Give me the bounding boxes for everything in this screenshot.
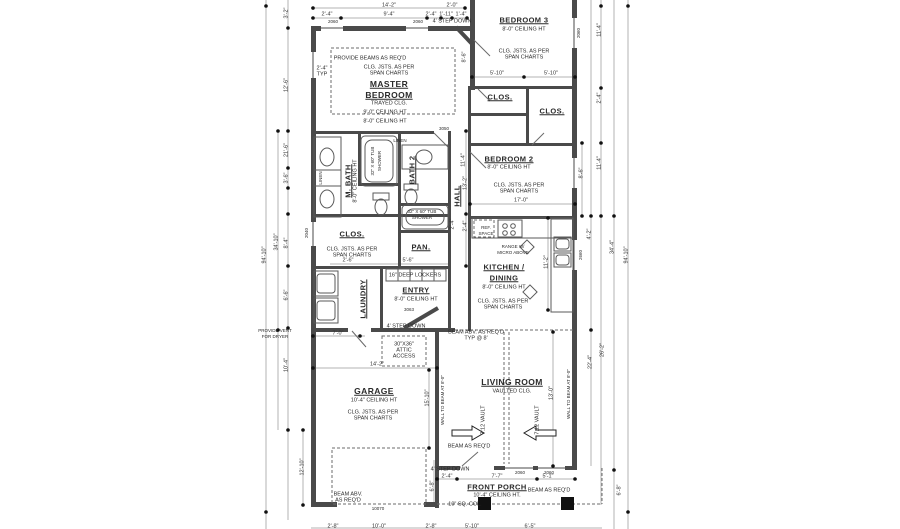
window-size-label: 2040 [305, 228, 310, 238]
dim-dot [427, 368, 431, 372]
room-label-porch: FRONT PORCH [467, 483, 526, 491]
burner-icon [503, 224, 508, 229]
note-wall-to-beam: WALL TO BEAM AT 8'-0" [567, 369, 572, 419]
mbath-ceiling-ht: 8'-0" CEILING HT [353, 159, 359, 202]
dim-label: 8'-6" [462, 52, 468, 63]
kitchen-sink-basin [556, 239, 569, 249]
note-tub-shower: 32" X 60" TUB [408, 210, 437, 215]
dim-label: 12'-10" [300, 458, 306, 475]
note-typ: TYP [317, 72, 328, 78]
note-linen: LINEN [319, 171, 324, 184]
door-leaf [352, 331, 366, 347]
dim-dot [573, 202, 577, 206]
dim-label: 3'-6" [284, 173, 290, 184]
dim-dot [573, 477, 577, 481]
toilet-icon [405, 189, 417, 205]
dim-dot [599, 86, 603, 90]
entry-ceiling-ht: 8'-0" CEILING HT [394, 297, 437, 303]
door-size-label: 10070 [372, 507, 385, 512]
burner-icon [511, 231, 516, 236]
range-icon [498, 220, 522, 237]
dim-label: 2'-4" [597, 93, 603, 104]
dim-label: 14'-2" [382, 3, 396, 9]
dryer-inner [317, 301, 335, 320]
burner-icon [511, 224, 516, 229]
dim-label: 10'-0" [372, 524, 386, 529]
note-tub-shower: 32" X 60" TUB [371, 147, 376, 176]
dim-dot [599, 141, 603, 145]
dim-label: 11'-4" [597, 23, 603, 37]
dim-dot [612, 214, 616, 218]
dim-dot [612, 468, 616, 472]
dim-dot [455, 477, 459, 481]
dim-dot [464, 264, 468, 268]
master-ceiling-ht-2: 8'-0" CEILING HT [363, 119, 406, 125]
dim-dot [301, 503, 305, 507]
door-leaf [462, 452, 478, 466]
kitchen-sink-basin [556, 255, 569, 265]
door-gap [348, 328, 371, 332]
room-label-closet-b: CLOS. [540, 107, 565, 115]
note-attic: ACCESS [393, 354, 416, 360]
wall [468, 113, 526, 116]
dim-label: 6'-8" [430, 481, 436, 492]
door-leaf [474, 40, 490, 56]
note-beam-req: BEAM AS REQ'D [528, 488, 571, 494]
room-label-closet-a: CLOS. [488, 93, 513, 101]
dim-dot [286, 186, 290, 190]
dim-label: 5'-10" [465, 524, 479, 529]
wall [526, 86, 529, 146]
dim-label: 2'-4" [442, 474, 453, 480]
window-size-label: 2060 [577, 28, 582, 38]
dim-label: 7'-7" [492, 474, 503, 480]
dim-dot [464, 129, 468, 133]
dim-dot [626, 510, 630, 514]
note-beam-req: BEAM AS REQ'D [448, 444, 491, 450]
dim-label: 6'-5" [525, 524, 536, 529]
dim-dot [286, 428, 290, 432]
dim-label: 2'-4" [463, 221, 469, 232]
washer-inner [317, 274, 335, 293]
note-vault: 7:12 VAULT [481, 405, 487, 434]
wall [435, 328, 439, 468]
dim-label: 2'-8" [328, 524, 339, 529]
room-label-kitchen-2: DINING [490, 274, 519, 282]
dim-dot [427, 446, 431, 450]
dim-label: 34'-4" [610, 240, 616, 254]
dim-dot [599, 214, 603, 218]
sink-icon [416, 150, 432, 164]
note-joists: SPAN CHARTS [354, 416, 393, 422]
dim-label: 13'-0" [549, 386, 555, 400]
bedroom2-ceiling-ht: 8'-0" CEILING HT [487, 165, 530, 171]
note-dryer-vent: FOR DRYER [262, 335, 288, 340]
dim-label: 9'-4" [384, 12, 395, 18]
living-vaulted-note: VAULTED CLG. [493, 389, 532, 395]
dim-dot [463, 6, 467, 10]
room-label-master-2: BEDROOM [365, 91, 412, 100]
dim-dot [535, 477, 539, 481]
porch-ceiling-ht: 10'-4" CEILING HT. [473, 493, 520, 499]
dim-dot [573, 75, 577, 79]
note-fridge: REF. [481, 226, 491, 231]
dim-label: 6'-6" [284, 290, 290, 301]
dim-label: 17'-0" [514, 198, 528, 204]
arrow-right-icon [452, 426, 484, 440]
window-size-label: 2060 [515, 471, 525, 476]
dim-label: 8'-4" [284, 238, 290, 249]
dim-dot [468, 202, 472, 206]
note-beam-above: TYP @ 8' [464, 336, 487, 342]
dim-dot [464, 212, 468, 216]
dim-label: 1'-11" [439, 12, 453, 18]
dim-label: 4'-2" [587, 229, 593, 240]
note-range: RANGE W/ [502, 245, 525, 250]
dim-label: 10'-4" [284, 358, 290, 372]
dim-dot [580, 214, 584, 218]
note-joists: SPAN CHARTS [370, 71, 409, 77]
room-label-laundry: LAUNDRY [359, 279, 367, 318]
dim-dot [286, 212, 290, 216]
dim-dot [286, 26, 290, 30]
window-size-label: 2060 [413, 20, 423, 25]
dim-label: 2'-0" [447, 3, 458, 9]
note-joists: SPAN CHARTS [505, 55, 544, 61]
note-beams: PROVIDE BEAMS AS REQ'D [334, 56, 407, 62]
bedroom3-ceiling-ht: 8'-0" CEILING HT [502, 27, 545, 33]
dim-dot [580, 141, 584, 145]
note-step-down: 4' STEP DOWN [431, 467, 470, 473]
room-label-garage: GARAGE [354, 387, 394, 396]
toilet-icon [375, 199, 387, 215]
room-label-mbath: M. BATH [344, 164, 352, 198]
dim-dot [626, 4, 630, 8]
dim-label: 2'-4" [450, 219, 456, 230]
dim-label: 5'-6" [403, 258, 414, 264]
dim-dot [264, 510, 268, 514]
dim-label: 7'-0" [333, 331, 344, 337]
sink-icon [320, 148, 334, 166]
note-sq-col: 10" SQ. COL. [448, 502, 481, 508]
door-size-label: 3063 [404, 308, 414, 313]
dim-label: 5'-10" [544, 71, 558, 77]
wall [401, 230, 448, 233]
note-joists: SPAN CHARTS [500, 189, 539, 195]
dim-label: 2'-6" [343, 258, 354, 264]
dim-label: 11'-4" [461, 153, 467, 167]
dim-dot [589, 214, 593, 218]
master-tray-note: TRAYED CLG. [371, 101, 407, 107]
dim-dot [311, 334, 315, 338]
room-label-entry: ENTRY [402, 286, 429, 294]
room-label-master-1: MASTER [370, 80, 408, 89]
dim-label: 34'-10" [274, 233, 280, 250]
note-tub-shower: SHOWER [412, 216, 432, 221]
room-label-living: LIVING ROOM [481, 378, 543, 387]
dim-label: 2'-8" [426, 524, 437, 529]
dim-dot [339, 16, 343, 20]
dim-label: 1'-4" [456, 12, 467, 18]
wall [311, 131, 434, 134]
room-label-bedroom2: BEDROOM 2 [484, 155, 533, 163]
dim-dot [589, 328, 593, 332]
dim-label: 2'-4" [426, 12, 437, 18]
wall [398, 134, 401, 269]
garage-ceiling-ht: 10'-4" CEILING HT [351, 398, 397, 404]
dim-dot [286, 129, 290, 133]
window-size-label: 2060 [328, 20, 338, 25]
dim-dot [551, 330, 555, 334]
note-step-down: 4' STEP DOWN [387, 324, 426, 330]
note-wall-to-beam: WALL TO BEAM AT 8'-0" [441, 375, 446, 425]
wall [380, 269, 383, 328]
dim-label: 11'-4" [597, 156, 603, 170]
dim-label: 15'-10" [425, 389, 431, 406]
dim-dot [522, 75, 526, 79]
dim-dot [311, 366, 315, 370]
dim-dot [276, 129, 280, 133]
porch-column [561, 497, 574, 510]
dim-dot [546, 216, 550, 220]
window-size-label: 3050 [439, 127, 449, 132]
dim-dot [551, 464, 555, 468]
room-label-kitchen-1: KITCHEN / [483, 263, 524, 271]
room-label-hall: HALL [453, 185, 461, 207]
sink-icon [320, 190, 334, 208]
dim-dot [599, 4, 603, 8]
room-label-master-closet: CLOS. [340, 230, 365, 238]
kitchen-ceiling-ht: 8'-0" CEILING HT [482, 285, 525, 291]
room-label-pantry: PAN. [412, 243, 431, 251]
dim-label: 11'-2" [544, 255, 550, 269]
dim-label: 14'-2" [370, 362, 384, 368]
dim-label: 5'-10" [490, 71, 504, 77]
floor-plan: MASTER BEDROOM TRAYED CLG. 9'-0" CEILING… [0, 0, 900, 529]
note-range: MICRO ABOVE [497, 251, 529, 256]
note-dryer-vent: PROVIDE VENT [258, 329, 292, 334]
dim-label: 22'-4" [588, 355, 594, 369]
note-joists: SPAN CHARTS [484, 305, 523, 311]
burner-icon [503, 231, 508, 236]
note-beam-above-garage: AS REQ'D [335, 498, 361, 504]
dim-label: 3'-2" [284, 8, 290, 19]
dim-label: 26'-2" [600, 343, 606, 357]
dim-label: 2'-4" [322, 12, 333, 18]
dim-dot [470, 75, 474, 79]
room-label-bath2: BATH 2 [408, 156, 416, 185]
dim-label: 5'-1" [543, 474, 554, 480]
dim-dot [311, 6, 315, 10]
dim-label: 94'-10" [262, 246, 268, 263]
dim-label: 12'-6" [284, 78, 290, 92]
note-vault: 7:12 VAULT [535, 405, 541, 434]
dim-dot [358, 334, 362, 338]
dim-dot [435, 366, 439, 370]
note-step-down: 4' STEP DOWN [433, 19, 472, 25]
dim-dot [264, 4, 268, 8]
room-label-bedroom3: BEDROOM 3 [499, 16, 548, 24]
dim-label: 94'-10" [624, 246, 630, 263]
dim-dot [311, 16, 315, 20]
dim-label: 21'-6" [284, 143, 290, 157]
wall [468, 88, 471, 331]
dim-dot [286, 166, 290, 170]
master-ceiling-ht: 9'-0" CEILING HT [363, 110, 406, 116]
note-tub-shower: SHOWER [378, 151, 383, 171]
dim-label: 13'-2" [463, 176, 469, 190]
window-size-label: 2660 [579, 250, 584, 260]
note-lockers: 16" DEEP LOCKERS [389, 273, 441, 279]
dim-dot [546, 308, 550, 312]
dim-dot [301, 428, 305, 432]
note-linen: LINEN [393, 139, 406, 144]
dim-label: 6'-8" [617, 485, 623, 496]
wall [468, 143, 575, 146]
wall [468, 86, 575, 89]
note-fridge: SPACE [479, 232, 494, 237]
dim-dot [286, 264, 290, 268]
dim-label: 8'-6" [579, 168, 585, 179]
